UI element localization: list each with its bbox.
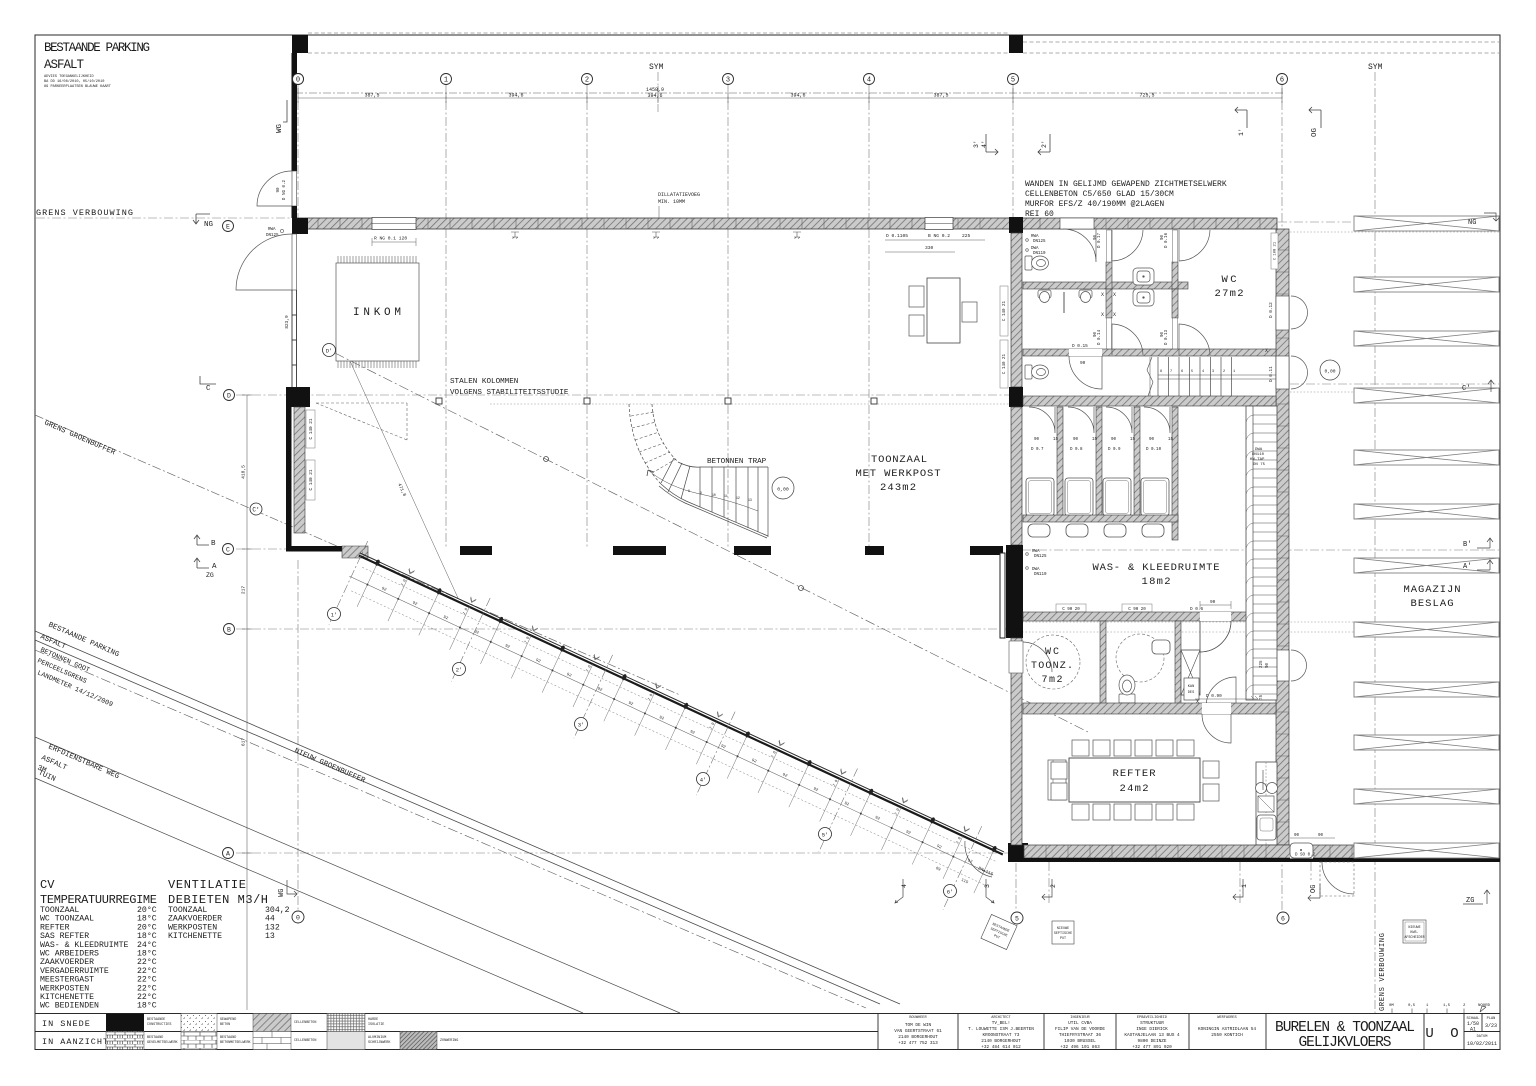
svg-text:CELLENBETON: CELLENBETON: [294, 1039, 316, 1043]
svg-text:5: 5: [1011, 77, 1015, 85]
svg-text:ADVIES TOEGANKELIJKHEID: ADVIES TOEGANKELIJKHEID: [44, 75, 94, 79]
svg-text:C 140 21: C 140 21: [1003, 300, 1007, 321]
svg-text:C 140 21: C 140 21: [309, 418, 314, 439]
svg-text:ZONWERING: ZONWERING: [440, 1039, 458, 1043]
svg-text:FILIP VAN DE VOORDE: FILIP VAN DE VOORDE: [1055, 1027, 1105, 1032]
svg-text:217: 217: [241, 586, 247, 595]
svg-text:ZG: ZG: [1466, 897, 1474, 905]
svg-text:BOUWHEER: BOUWHEER: [909, 1016, 927, 1020]
svg-text:9: 9: [700, 491, 702, 495]
svg-text:0,00: 0,00: [1324, 369, 1335, 375]
svg-text:ZAAKVOERDER: ZAAKVOERDER: [40, 958, 94, 967]
svg-text:WC ARBEIDERS: WC ARBEIDERS: [40, 950, 99, 959]
svg-text:44: 44: [265, 915, 275, 924]
svg-text:X: X: [1196, 699, 1199, 705]
svg-text:EPB&VEILIGHEID: EPB&VEILIGHEID: [1137, 1016, 1167, 1020]
svg-text:THIEFRYSTRAAT 36: THIEFRYSTRAAT 36: [1059, 1033, 1102, 1038]
svg-text:SYM: SYM: [1368, 63, 1383, 72]
svg-text:330: 330: [925, 245, 934, 251]
svg-text:24m2: 24m2: [1120, 783, 1149, 795]
svg-text:C 140 21: C 140 21: [1003, 353, 1007, 374]
svg-text:4: 4: [901, 884, 908, 888]
svg-text:ISOLATIE: ISOLATIE: [368, 1023, 384, 1027]
svg-text:D NG 0.2: D NG 0.2: [283, 179, 287, 200]
svg-text:3': 3': [578, 722, 585, 729]
svg-text:12: 12: [736, 496, 740, 500]
svg-text:90: 90: [1073, 438, 1079, 442]
svg-text:A': A': [1463, 563, 1471, 571]
svg-text:WC TOONZAAL: WC TOONZAAL: [40, 915, 94, 924]
svg-text:KITCHENETTE: KITCHENETTE: [40, 993, 94, 1002]
svg-text:SYM: SYM: [649, 63, 664, 72]
svg-text:VERGADERRUIMTE: VERGADERRUIMTE: [40, 967, 109, 976]
svg-text:394,6: 394,6: [647, 93, 662, 99]
svg-text:D 0.10: D 0.10: [1146, 448, 1162, 452]
svg-text:SAS REFTER: SAS REFTER: [40, 932, 89, 941]
svg-text:9800 DEINZE: 9800 DEINZE: [1138, 1039, 1167, 1044]
svg-text:90: 90: [1149, 438, 1155, 442]
svg-text:CONSTRUCTIES: CONSTRUCTIES: [147, 1023, 171, 1027]
svg-text:PLAN: PLAN: [1487, 1017, 1496, 1021]
svg-text:90: 90: [1266, 662, 1270, 668]
svg-text:6': 6': [947, 889, 954, 896]
svg-text:5': 5': [822, 832, 829, 839]
svg-text:8: 8: [1160, 370, 1162, 374]
svg-text:5: 5: [1015, 916, 1019, 923]
svg-text:2: 2: [1050, 884, 1057, 888]
svg-text:DILLATATIEVOEG: DILLATATIEVOEG: [658, 192, 700, 198]
svg-text:X: X: [1113, 292, 1116, 298]
svg-text:22°C: 22°C: [137, 993, 157, 1002]
svg-text:GELIJKVLOERS: GELIJKVLOERS: [1299, 1035, 1392, 1051]
svg-text:RWA: RWA: [1031, 235, 1039, 239]
svg-text:4': 4': [700, 777, 707, 784]
svg-text:UTIL CVBA: UTIL CVBA: [1068, 1021, 1092, 1026]
svg-text:3/23: 3/23: [1485, 1023, 1497, 1029]
svg-text:X: X: [1265, 348, 1268, 354]
svg-text:NIEUWE: NIEUWE: [1408, 926, 1420, 930]
svg-text:CELLENBETON: CELLENBETON: [294, 1021, 316, 1025]
svg-text:DWA: DWA: [1032, 568, 1040, 572]
svg-text:MIN. 10MM: MIN. 10MM: [658, 199, 685, 205]
svg-text:304,2: 304,2: [265, 906, 290, 915]
svg-text:2140 BORGERHOUT: 2140 BORGERHOUT: [981, 1039, 1021, 1044]
svg-text:D 0.13: D 0.13: [1165, 329, 1169, 345]
svg-text:22°C: 22°C: [137, 967, 157, 976]
svg-text:IN SNEDE: IN SNEDE: [42, 1019, 91, 1029]
svg-text:2: 2: [585, 77, 589, 85]
svg-text:90: 90: [1094, 234, 1098, 240]
svg-text:SCHRIJNWERK: SCHRIJNWERK: [368, 1041, 391, 1045]
svg-text:C': C': [252, 507, 259, 514]
svg-text:BETONNEN TRAP: BETONNEN TRAP: [707, 458, 767, 466]
svg-text:1: 1: [1233, 370, 1235, 374]
svg-text:WANDEN IN GELIJMD GEWAPEND ZIC: WANDEN IN GELIJMD GEWAPEND ZICHTMETSELWE…: [1025, 180, 1227, 189]
svg-text:725,5: 725,5: [1139, 93, 1154, 99]
svg-text:+32 477 752 313: +32 477 752 313: [898, 1041, 938, 1046]
svg-text:20°C: 20°C: [137, 923, 157, 932]
svg-text:24°C: 24°C: [137, 941, 157, 950]
svg-text:STRUKTUUR: STRUKTUUR: [1140, 1021, 1164, 1026]
svg-text:TOONZAAL: TOONZAAL: [871, 454, 927, 466]
svg-text:2550 KONTICH: 2550 KONTICH: [1211, 1033, 1243, 1038]
svg-text:GRENS VERBOUWING: GRENS VERBOUWING: [1379, 933, 1387, 1011]
svg-text:BURELEN & TOONZAAL: BURELEN & TOONZAAL: [1275, 1020, 1415, 1036]
svg-text:18°C: 18°C: [137, 915, 157, 924]
svg-text:WC BEDIENDEN: WC BEDIENDEN: [40, 1002, 99, 1011]
svg-text:WG: WG: [278, 889, 286, 897]
svg-text:SEPTISCHE: SEPTISCHE: [1054, 932, 1072, 936]
svg-text:3': 3': [973, 140, 980, 148]
svg-text:TOM DE WIN: TOM DE WIN: [905, 1023, 932, 1028]
svg-text:4': 4': [981, 140, 988, 148]
svg-text:CELLENBETON C5/650 GLAD 15/30C: CELLENBETON C5/650 GLAD 15/30CM: [1025, 190, 1174, 199]
svg-text:10/02/2011: 10/02/2011: [1467, 1041, 1497, 1047]
svg-text:2: 2: [1223, 370, 1225, 374]
svg-text:2140 BORGERHOUT: 2140 BORGERHOUT: [898, 1035, 938, 1040]
svg-text:TEMPERATUURREGIME: TEMPERATUURREGIME: [40, 893, 157, 907]
svg-text:1': 1': [331, 612, 338, 619]
svg-text:2': 2': [456, 667, 463, 674]
svg-text:C': C': [1462, 385, 1470, 393]
svg-text:2': 2': [1041, 140, 1048, 148]
svg-text:75: 75: [1260, 694, 1264, 700]
svg-text:3: 3: [984, 884, 991, 888]
svg-text:TV_BEL!: TV_BEL!: [992, 1021, 1010, 1026]
svg-text:BETONMETSELWERK: BETONMETSELWERK: [220, 1041, 251, 1045]
svg-text:VENTILATIE: VENTILATIE: [168, 878, 246, 892]
svg-text:KITCHENETTE: KITCHENETTE: [168, 932, 222, 941]
svg-text:MEESTERGAST: MEESTERGAST: [40, 976, 94, 985]
svg-text:0: 0: [296, 77, 300, 85]
svg-text:3: 3: [1212, 370, 1214, 374]
svg-text:90: 90: [1034, 438, 1040, 442]
svg-text:X: X: [1113, 312, 1116, 318]
svg-text:DWA: DWA: [1031, 247, 1039, 251]
svg-text:132: 132: [265, 923, 280, 932]
svg-text:3: 3: [726, 77, 730, 85]
svg-text:90: 90: [1294, 834, 1300, 838]
svg-text:WERKPOSTEN: WERKPOSTEN: [168, 923, 217, 932]
svg-text:B: B: [211, 540, 216, 548]
svg-text:823,9: 823,9: [285, 315, 290, 329]
svg-text:D 0.11: D 0.11: [1269, 366, 1274, 382]
svg-text:D 0.1105: D 0.1105: [886, 233, 908, 239]
svg-text:ZG: ZG: [206, 572, 214, 579]
svg-text:4: 4: [1202, 370, 1204, 374]
svg-text:90: 90: [1161, 331, 1165, 337]
svg-text:D: D: [227, 393, 231, 400]
svg-text:A: A: [226, 851, 230, 858]
svg-text:A1: A1: [1470, 1027, 1476, 1033]
svg-text:DN125: DN125: [1033, 240, 1046, 244]
svg-text:BESLAG: BESLAG: [1411, 598, 1454, 610]
svg-text:VAN GEERTSTRAAT 61: VAN GEERTSTRAAT 61: [894, 1029, 942, 1034]
svg-text:KW-TAP: KW-TAP: [1250, 458, 1265, 462]
svg-text:BESTAANDE: BESTAANDE: [147, 1018, 165, 1022]
svg-text:BETON: BETON: [220, 1023, 230, 1027]
svg-text:INGE DIERICK: INGE DIERICK: [1136, 1027, 1168, 1032]
svg-text:WAS- & KLEEDRUIMTE: WAS- & KLEEDRUIMTE: [40, 941, 129, 950]
svg-text:11: 11: [724, 494, 728, 498]
svg-text:18°C: 18°C: [137, 932, 157, 941]
svg-text:GEVELMETSELWERK: GEVELMETSELWERK: [147, 1041, 178, 1045]
svg-text:X: X: [1101, 292, 1104, 298]
svg-text:NG: NG: [1468, 219, 1476, 227]
svg-text:DN 75: DN 75: [1253, 463, 1266, 467]
svg-text:B': B': [1463, 541, 1471, 549]
svg-text:418,5: 418,5: [241, 465, 247, 479]
svg-text:DN110: DN110: [1252, 453, 1265, 457]
svg-text:D': D': [326, 348, 333, 355]
svg-text:TOONZAAL: TOONZAAL: [168, 906, 207, 915]
svg-text:A: A: [212, 563, 217, 571]
svg-text:C 90 20: C 90 20: [1062, 608, 1080, 612]
svg-text:KONINGIN ASTRIDLAAN 54: KONINGIN ASTRIDLAAN 54: [1198, 1027, 1256, 1032]
svg-text:DWA: DWA: [1255, 448, 1263, 452]
svg-text:13: 13: [265, 932, 275, 941]
svg-text:C 90 20: C 90 20: [1128, 608, 1146, 612]
svg-text:C 108 21: C 108 21: [1274, 241, 1278, 260]
svg-text:ALUMINIUM: ALUMINIUM: [368, 1036, 386, 1040]
svg-text:D 0.9: D 0.9: [1108, 448, 1121, 452]
svg-text:90: 90: [1080, 361, 1086, 366]
svg-text:D 0.6: D 0.6: [1190, 607, 1204, 612]
svg-text:VOLGENS STABILITEITSSTUDIE: VOLGENS STABILITEITSSTUDIE: [450, 389, 569, 397]
svg-text:5: 5: [1191, 370, 1193, 374]
svg-text:D 0.15: D 0.15: [1072, 344, 1088, 349]
svg-text:D 0.7: D 0.7: [1031, 448, 1044, 452]
svg-text:7m2: 7m2: [1042, 675, 1063, 686]
svg-text:AFSCHEIDER: AFSCHEIDER: [1404, 936, 1424, 940]
svg-text:STALEN KOLOMMEN: STALEN KOLOMMEN: [450, 378, 518, 386]
svg-text:ARCHITECT: ARCHITECT: [991, 1016, 1011, 1020]
svg-text:+32 496 101 863: +32 496 101 863: [1060, 1045, 1100, 1050]
svg-text:+32 484 614 012: +32 484 614 012: [981, 1045, 1021, 1050]
svg-text:225: 225: [1260, 660, 1264, 668]
svg-text:90: 90: [1318, 834, 1324, 838]
svg-text:387,5: 387,5: [933, 93, 948, 99]
svg-text:D 0.16: D 0.16: [1165, 232, 1169, 248]
svg-text:6: 6: [1181, 370, 1183, 374]
svg-text:22°C: 22°C: [137, 958, 157, 967]
svg-text:15: 15: [1092, 438, 1098, 442]
svg-text:E: E: [226, 224, 230, 231]
svg-text:KROONSTRAAT 73: KROONSTRAAT 73: [983, 1033, 1020, 1038]
svg-text:MAGAZIJN: MAGAZIJN: [1404, 584, 1461, 596]
svg-text:GEWAPEND: GEWAPEND: [220, 1018, 236, 1022]
svg-text:D 0.14: D 0.14: [1098, 329, 1102, 345]
svg-text:REFTER: REFTER: [40, 923, 70, 932]
svg-text:X: X: [1101, 312, 1104, 318]
svg-text:OG: OG: [1311, 127, 1319, 137]
svg-text:DES: DES: [1188, 691, 1194, 695]
svg-text:U O: U O: [1425, 1026, 1462, 1042]
svg-text:20°C: 20°C: [137, 906, 157, 915]
svg-text:90: 90: [1161, 234, 1165, 240]
svg-text:KASTANJELAAN 13 BUS 4: KASTANJELAAN 13 BUS 4: [1124, 1033, 1180, 1038]
svg-text:DN110: DN110: [1034, 573, 1047, 577]
svg-text:15: 15: [1130, 438, 1136, 442]
svg-text:7: 7: [1170, 370, 1172, 374]
svg-text:1': 1': [1238, 128, 1245, 136]
svg-text:INKOM: INKOM: [353, 307, 403, 319]
svg-text:CV: CV: [40, 878, 55, 892]
svg-text:BESTAAND: BESTAAND: [147, 1036, 163, 1040]
svg-text:394,6: 394,6: [508, 93, 523, 99]
svg-text:4: 4: [867, 77, 871, 85]
svg-text:243m2: 243m2: [880, 482, 916, 494]
svg-text:90: 90: [1111, 438, 1117, 442]
svg-text:D 0.17: D 0.17: [1098, 232, 1102, 248]
svg-text:OG: OG: [1310, 885, 1318, 893]
svg-text:10: 10: [712, 493, 716, 497]
svg-text:B: B: [227, 627, 231, 634]
svg-text:T. LOUWETTE ISM J.BEERTEN: T. LOUWETTE ISM J.BEERTEN: [968, 1027, 1034, 1032]
svg-text:DN110: DN110: [1033, 252, 1046, 256]
svg-text:R NG 0.1 120: R NG 0.1 120: [374, 236, 407, 242]
svg-text:394,6: 394,6: [790, 93, 805, 99]
svg-text:PUT: PUT: [1060, 937, 1066, 941]
svg-text:DATUM: DATUM: [1477, 1035, 1488, 1039]
svg-text:90: 90: [1210, 600, 1216, 605]
svg-text:WC: WC: [1045, 647, 1059, 658]
svg-text:D SO 0.2: D SO 0.2: [1295, 854, 1316, 858]
svg-text:0: 0: [296, 915, 300, 922]
svg-text:GRENS VERBOUWING: GRENS VERBOUWING: [36, 208, 133, 218]
svg-text:18m2: 18m2: [1142, 576, 1171, 588]
svg-text:6: 6: [1280, 77, 1284, 85]
svg-text:D 0.12: D 0.12: [1269, 302, 1274, 318]
svg-text:DN125: DN125: [1034, 555, 1047, 559]
svg-text:15: 15: [1053, 438, 1059, 442]
svg-text:WERKPOSTEN: WERKPOSTEN: [40, 984, 89, 993]
svg-text:NG: NG: [204, 221, 214, 229]
svg-text:89 PARKEERPLAATSEN BLAUWE KAAR: 89 PARKEERPLAATSEN BLAUWE KAART: [44, 85, 112, 89]
svg-text:RWA: RWA: [268, 228, 276, 232]
svg-text:0,00: 0,00: [777, 487, 789, 493]
svg-text:C 140 21: C 140 21: [309, 469, 314, 490]
svg-text:D 0.8: D 0.8: [1070, 448, 1083, 452]
svg-text:22°C: 22°C: [137, 984, 157, 993]
svg-text:B NG 0.2: B NG 0.2: [928, 233, 950, 239]
svg-text:1030 BRUSSEL: 1030 BRUSSEL: [1064, 1039, 1096, 1044]
svg-text:6: 6: [1281, 916, 1285, 923]
svg-text:WERFADRES: WERFADRES: [1217, 1016, 1236, 1020]
svg-text:90: 90: [277, 187, 281, 193]
svg-text:18°C: 18°C: [137, 1002, 157, 1011]
svg-text:NIEUWE: NIEUWE: [1057, 927, 1069, 931]
svg-text:MET WERKPOST: MET WERKPOST: [856, 468, 941, 480]
svg-text:NOORD: NOORD: [1478, 1004, 1491, 1008]
svg-text:WG: WG: [276, 123, 284, 133]
svg-text:HARDE: HARDE: [368, 1018, 378, 1022]
svg-text:18°C: 18°C: [137, 950, 157, 959]
svg-text:387,5: 387,5: [364, 93, 379, 99]
svg-text:27m2: 27m2: [1215, 288, 1244, 300]
svg-text:KAN: KAN: [1188, 685, 1194, 689]
svg-text:1,5: 1,5: [1443, 1004, 1451, 1008]
svg-text:8: 8: [688, 489, 690, 493]
svg-text:BESTAANDE PARKING: BESTAANDE PARKING: [44, 41, 150, 55]
svg-text:RWA: RWA: [1032, 550, 1040, 554]
svg-text:15: 15: [1168, 438, 1174, 442]
svg-text:ASFALT: ASFALT: [44, 58, 84, 72]
svg-text:90: 90: [1094, 331, 1098, 337]
svg-text:DEBIETEN M3/H: DEBIETEN M3/H: [168, 893, 268, 907]
svg-text:TOONZAAL: TOONZAAL: [40, 906, 79, 915]
svg-text:1: 1: [1241, 884, 1248, 888]
svg-text:BA DD 16/08/2010, 05/10/2010: BA DD 16/08/2010, 05/10/2010: [44, 79, 104, 84]
svg-text:1: 1: [444, 77, 448, 85]
svg-text:225: 225: [962, 233, 971, 239]
svg-text:+32 477 891 020: +32 477 891 020: [1132, 1045, 1172, 1050]
svg-text:KWS-: KWS-: [1410, 931, 1418, 935]
svg-text:C: C: [206, 385, 211, 393]
svg-text:INGENIEUR: INGENIEUR: [1070, 1016, 1090, 1020]
svg-text:0,5: 0,5: [1408, 1004, 1416, 1008]
svg-text:D 0.90: D 0.90: [1206, 694, 1222, 699]
svg-text:BESTAAND: BESTAAND: [220, 1036, 236, 1040]
svg-text:WAS- & KLEEDRUIMTE: WAS- & KLEEDRUIMTE: [1093, 562, 1220, 574]
svg-text:IN AANZICHT: IN AANZICHT: [42, 1037, 109, 1047]
svg-text:0M: 0M: [1389, 1004, 1394, 1008]
svg-text:22°C: 22°C: [137, 976, 157, 985]
svg-text:REFTER: REFTER: [1113, 768, 1157, 780]
svg-text:13: 13: [748, 498, 752, 502]
svg-text:C: C: [226, 547, 230, 554]
svg-text:MURFOR EFS/Z 40/190MM @2LAGEN: MURFOR EFS/Z 40/190MM @2LAGEN: [1025, 200, 1164, 209]
svg-text:ZAAKVOERDER: ZAAKVOERDER: [168, 915, 222, 924]
